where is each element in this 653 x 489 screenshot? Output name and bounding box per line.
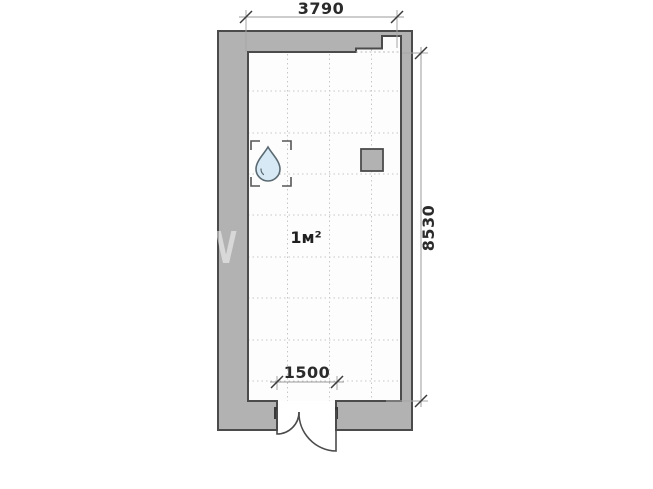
floor-plan-drawing: V 1м² 3790 8530 <box>0 0 653 489</box>
door-leaf-left <box>277 410 299 434</box>
door-leaf-right <box>299 410 336 451</box>
dimension-top-label: 3790 <box>298 0 345 18</box>
shaft-box <box>361 149 383 171</box>
floor-plan-canvas: V 1м² 3790 8530 <box>0 0 653 489</box>
watermark-letter: V <box>215 222 237 274</box>
dimension-door-label: 1500 <box>284 363 331 382</box>
dimension-right-label: 8530 <box>419 205 438 252</box>
room-area-label: 1м² <box>290 228 321 247</box>
